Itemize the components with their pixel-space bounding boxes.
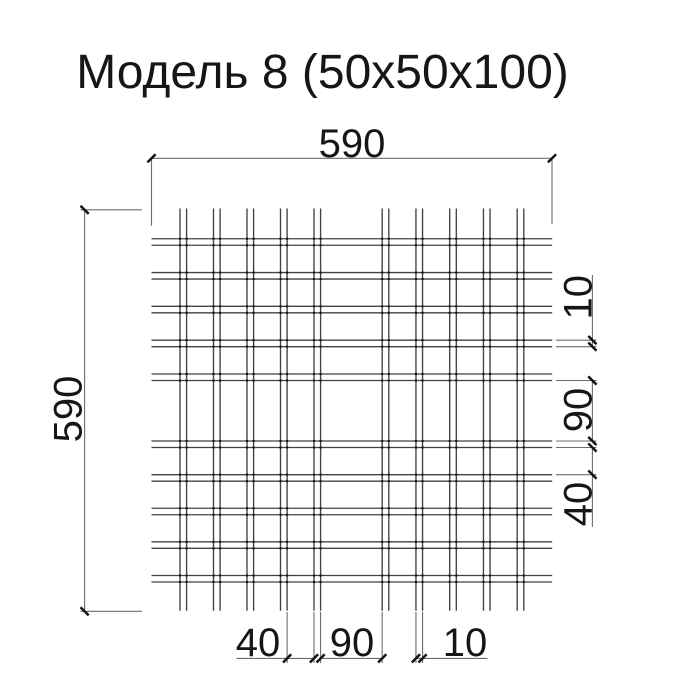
svg-text:90: 90 [330, 621, 375, 665]
svg-text:590: 590 [47, 376, 91, 443]
svg-text:10: 10 [443, 621, 488, 665]
svg-text:90: 90 [557, 388, 601, 433]
svg-text:40: 40 [236, 621, 281, 665]
svg-text:590: 590 [319, 122, 386, 166]
svg-text:10: 10 [557, 275, 601, 320]
svg-text:Модель 8 (50х50х100): Модель 8 (50х50х100) [76, 46, 569, 99]
svg-text:40: 40 [557, 482, 601, 527]
